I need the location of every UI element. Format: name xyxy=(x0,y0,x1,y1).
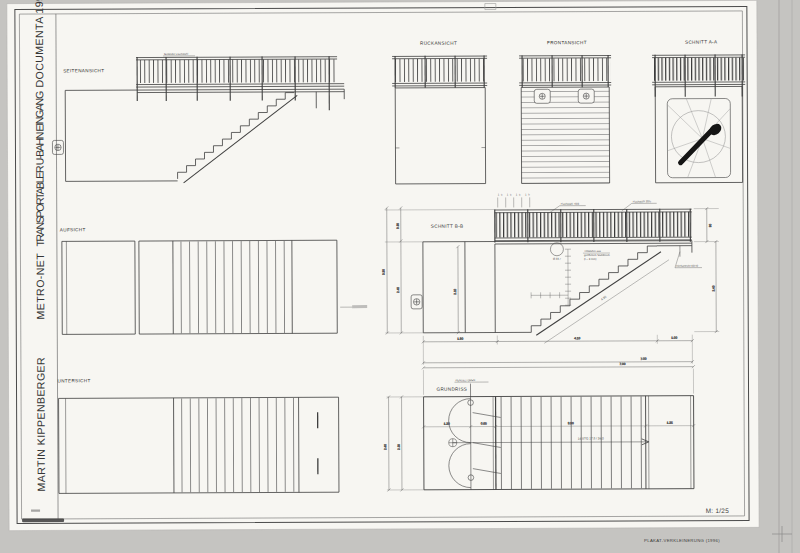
plan-dim-depth-inner: 2.30 xyxy=(397,444,401,450)
title-event: DOCUMENTA 1997 xyxy=(33,0,45,88)
plan-dim-seg1: 1.20 xyxy=(444,422,450,426)
detail-note: Ø 33,7 xyxy=(553,257,562,261)
title-subtitle: TRANSPORTABLER U-BAHN EINGANG xyxy=(33,90,46,246)
dim-right-rail: 90 xyxy=(708,224,712,228)
drawing-sheet: MARTIN KIPPENBERGER METRO-NET TRANSPORTA… xyxy=(7,0,759,531)
plan-dim-seg2: 0.65 xyxy=(481,422,487,426)
dim-box-height: 2.40 xyxy=(396,287,400,293)
view-label-schnitt-bb: SCHNITT B-B xyxy=(431,224,464,229)
plan-dim-total: 7.00 xyxy=(619,362,625,366)
title-artist: MARTIN KIPPENBERGER xyxy=(34,357,47,492)
dim-seg-left: 1.90 xyxy=(457,337,463,341)
view-label-untersicht: UNTERSICHT xyxy=(57,378,90,383)
steps-note-1: Trittstufen aus xyxy=(584,249,602,253)
dim-rail-height: 0.90 xyxy=(396,223,400,229)
dim-inner-height: 2.10 xyxy=(453,288,457,294)
railing-note: Geländer Flachstahl xyxy=(164,52,188,56)
plan-dim-seg3: 3.90 xyxy=(568,421,574,425)
view-label-aufsicht: AUFSICHT xyxy=(60,227,86,232)
photograph-of-drawing: MARTIN KIPPENBERGER METRO-NET TRANSPORTA… xyxy=(0,0,800,553)
view-label-frontansicht: FRONTANSICHT xyxy=(547,40,587,45)
view-label-schnitt-aa: SCHNITT A-A xyxy=(685,40,718,45)
treads-bottom xyxy=(174,398,299,493)
dim-right-height: 2.40 xyxy=(712,285,716,291)
railing-balusters xyxy=(137,59,336,83)
illegible-note xyxy=(352,305,367,308)
steps-note-3: (t = 3 mm) xyxy=(584,257,596,261)
illegible-credit-text xyxy=(22,518,64,522)
illegible-mark xyxy=(31,509,40,511)
paper xyxy=(7,0,759,530)
view-label-rueckansicht: RÜCKANSICHT xyxy=(420,40,457,46)
rail-note-1: Flachstahl 40/8 xyxy=(561,202,580,206)
photo-caption: PLAKAT-VERKLEINERUNG (1996) xyxy=(644,538,720,543)
treads-top xyxy=(173,241,292,334)
view-label-seitenansicht: SEITENANSICHT xyxy=(63,68,104,73)
view-label-grundriss: GRUNDRISS xyxy=(437,387,468,392)
door-note: PENDELTÜREN xyxy=(455,378,475,382)
plan-dim-seg4: 1.25 xyxy=(667,421,673,425)
drawing-sheet-svg: MARTIN KIPPENBERGER METRO-NET TRANSPORTA… xyxy=(0,0,800,553)
dim-seg-mid: 4.10 xyxy=(574,336,580,340)
scale-label: M: 1/25 xyxy=(706,507,730,514)
plan-dim-depth: 2.40 xyxy=(383,444,387,450)
dim-total-width: 7.00 xyxy=(640,357,646,361)
stair-count-note: 14 STG 17,8 / 26,0 xyxy=(578,437,604,441)
steps-note-2: geriffeltem Stahlblech xyxy=(584,253,610,257)
title-work: METRO-NET xyxy=(34,253,46,320)
view-frontansicht: FRONTANSICHT xyxy=(519,40,612,183)
support-note: Vierkantrohr 60/40 xyxy=(676,264,699,268)
plan-treads xyxy=(496,396,645,489)
rail-note-2: Flachstahl 30/5 xyxy=(633,199,652,203)
dim-seg-right: 1.00 xyxy=(671,336,677,340)
dim-height-total: 3.30 xyxy=(381,269,385,275)
